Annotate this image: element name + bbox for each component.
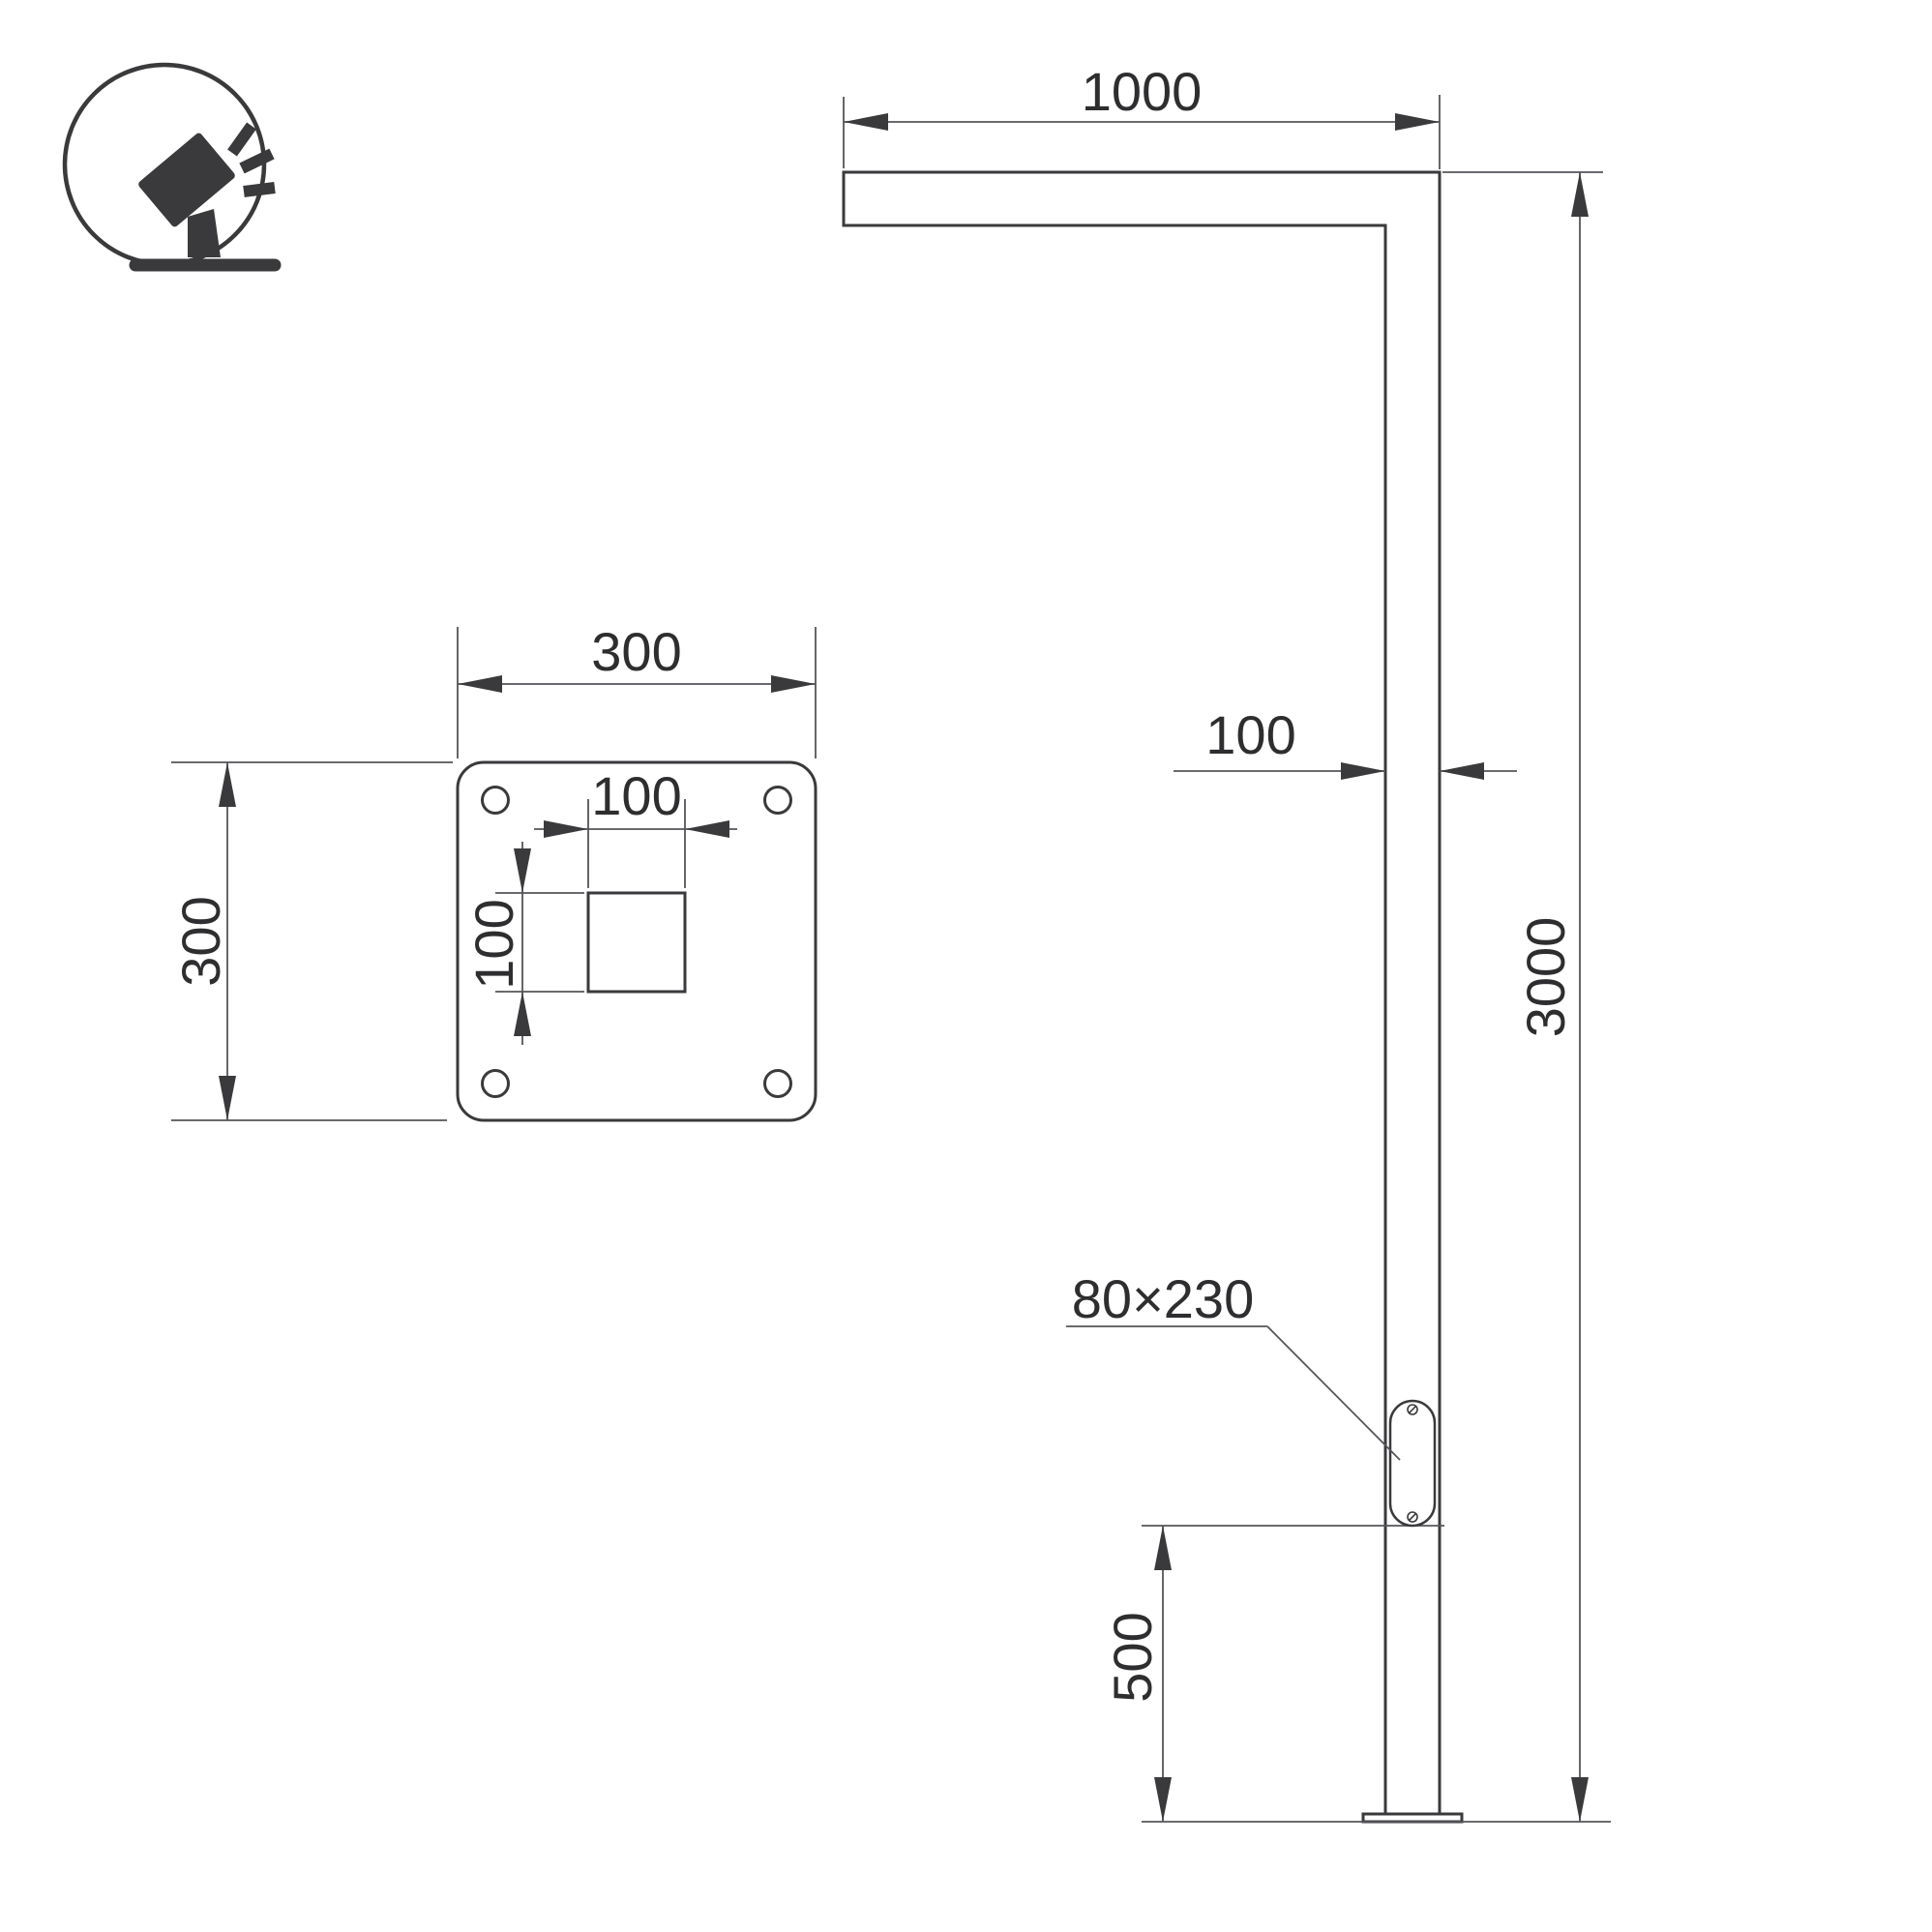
arrowhead (1571, 172, 1589, 217)
arrowhead (1571, 1777, 1589, 1822)
dim-label-plate-height: 300 (170, 896, 231, 986)
product-type-badge (65, 65, 275, 265)
technical-drawing: 1000 100 3000 80×230 500 300 300 100 100 (0, 0, 1932, 1932)
light-ray-middle (242, 154, 272, 168)
arrowheads (219, 113, 1589, 1822)
dimension-labels: 1000 100 3000 80×230 500 300 300 100 100 (170, 61, 1576, 1703)
arrowhead (1154, 1777, 1172, 1822)
dim-label-door-size: 80×230 (1072, 1268, 1254, 1329)
service-door (1390, 1401, 1435, 1526)
drawing-canvas: 1000 100 3000 80×230 500 300 300 100 100 (0, 0, 1932, 1932)
dim-label-door-offset: 500 (1102, 1612, 1163, 1702)
dim-label-pole-width: 100 (1205, 704, 1295, 765)
arrowhead (1395, 113, 1440, 131)
tilted-floodlight-icon (135, 126, 275, 265)
arrowhead (1440, 762, 1484, 780)
arrowhead (219, 1076, 236, 1120)
floodlight-body (137, 132, 237, 228)
dim-label-pole-height: 3000 (1515, 917, 1576, 1038)
arrowhead (1154, 1526, 1172, 1570)
arrowhead (844, 113, 888, 131)
arrowhead (219, 762, 236, 807)
floodlight-stand (188, 209, 221, 257)
pole-base-plate (1363, 1814, 1462, 1822)
light-ray-top (232, 126, 252, 153)
elevation-view (844, 172, 1462, 1822)
arrowhead (771, 675, 816, 693)
light-ray-bottom (244, 188, 275, 192)
dim-label-hole-height: 100 (463, 899, 524, 989)
arrowhead (458, 675, 502, 693)
dim-label-hole-width: 100 (591, 765, 681, 826)
dim-label-arm-length: 1000 (1082, 61, 1203, 122)
pole-outline (844, 172, 1440, 1814)
dim-label-plate-width: 300 (591, 621, 681, 682)
service-door-group (1066, 1326, 1435, 1526)
leader-line (1267, 1326, 1400, 1460)
arrowhead (1341, 762, 1385, 780)
